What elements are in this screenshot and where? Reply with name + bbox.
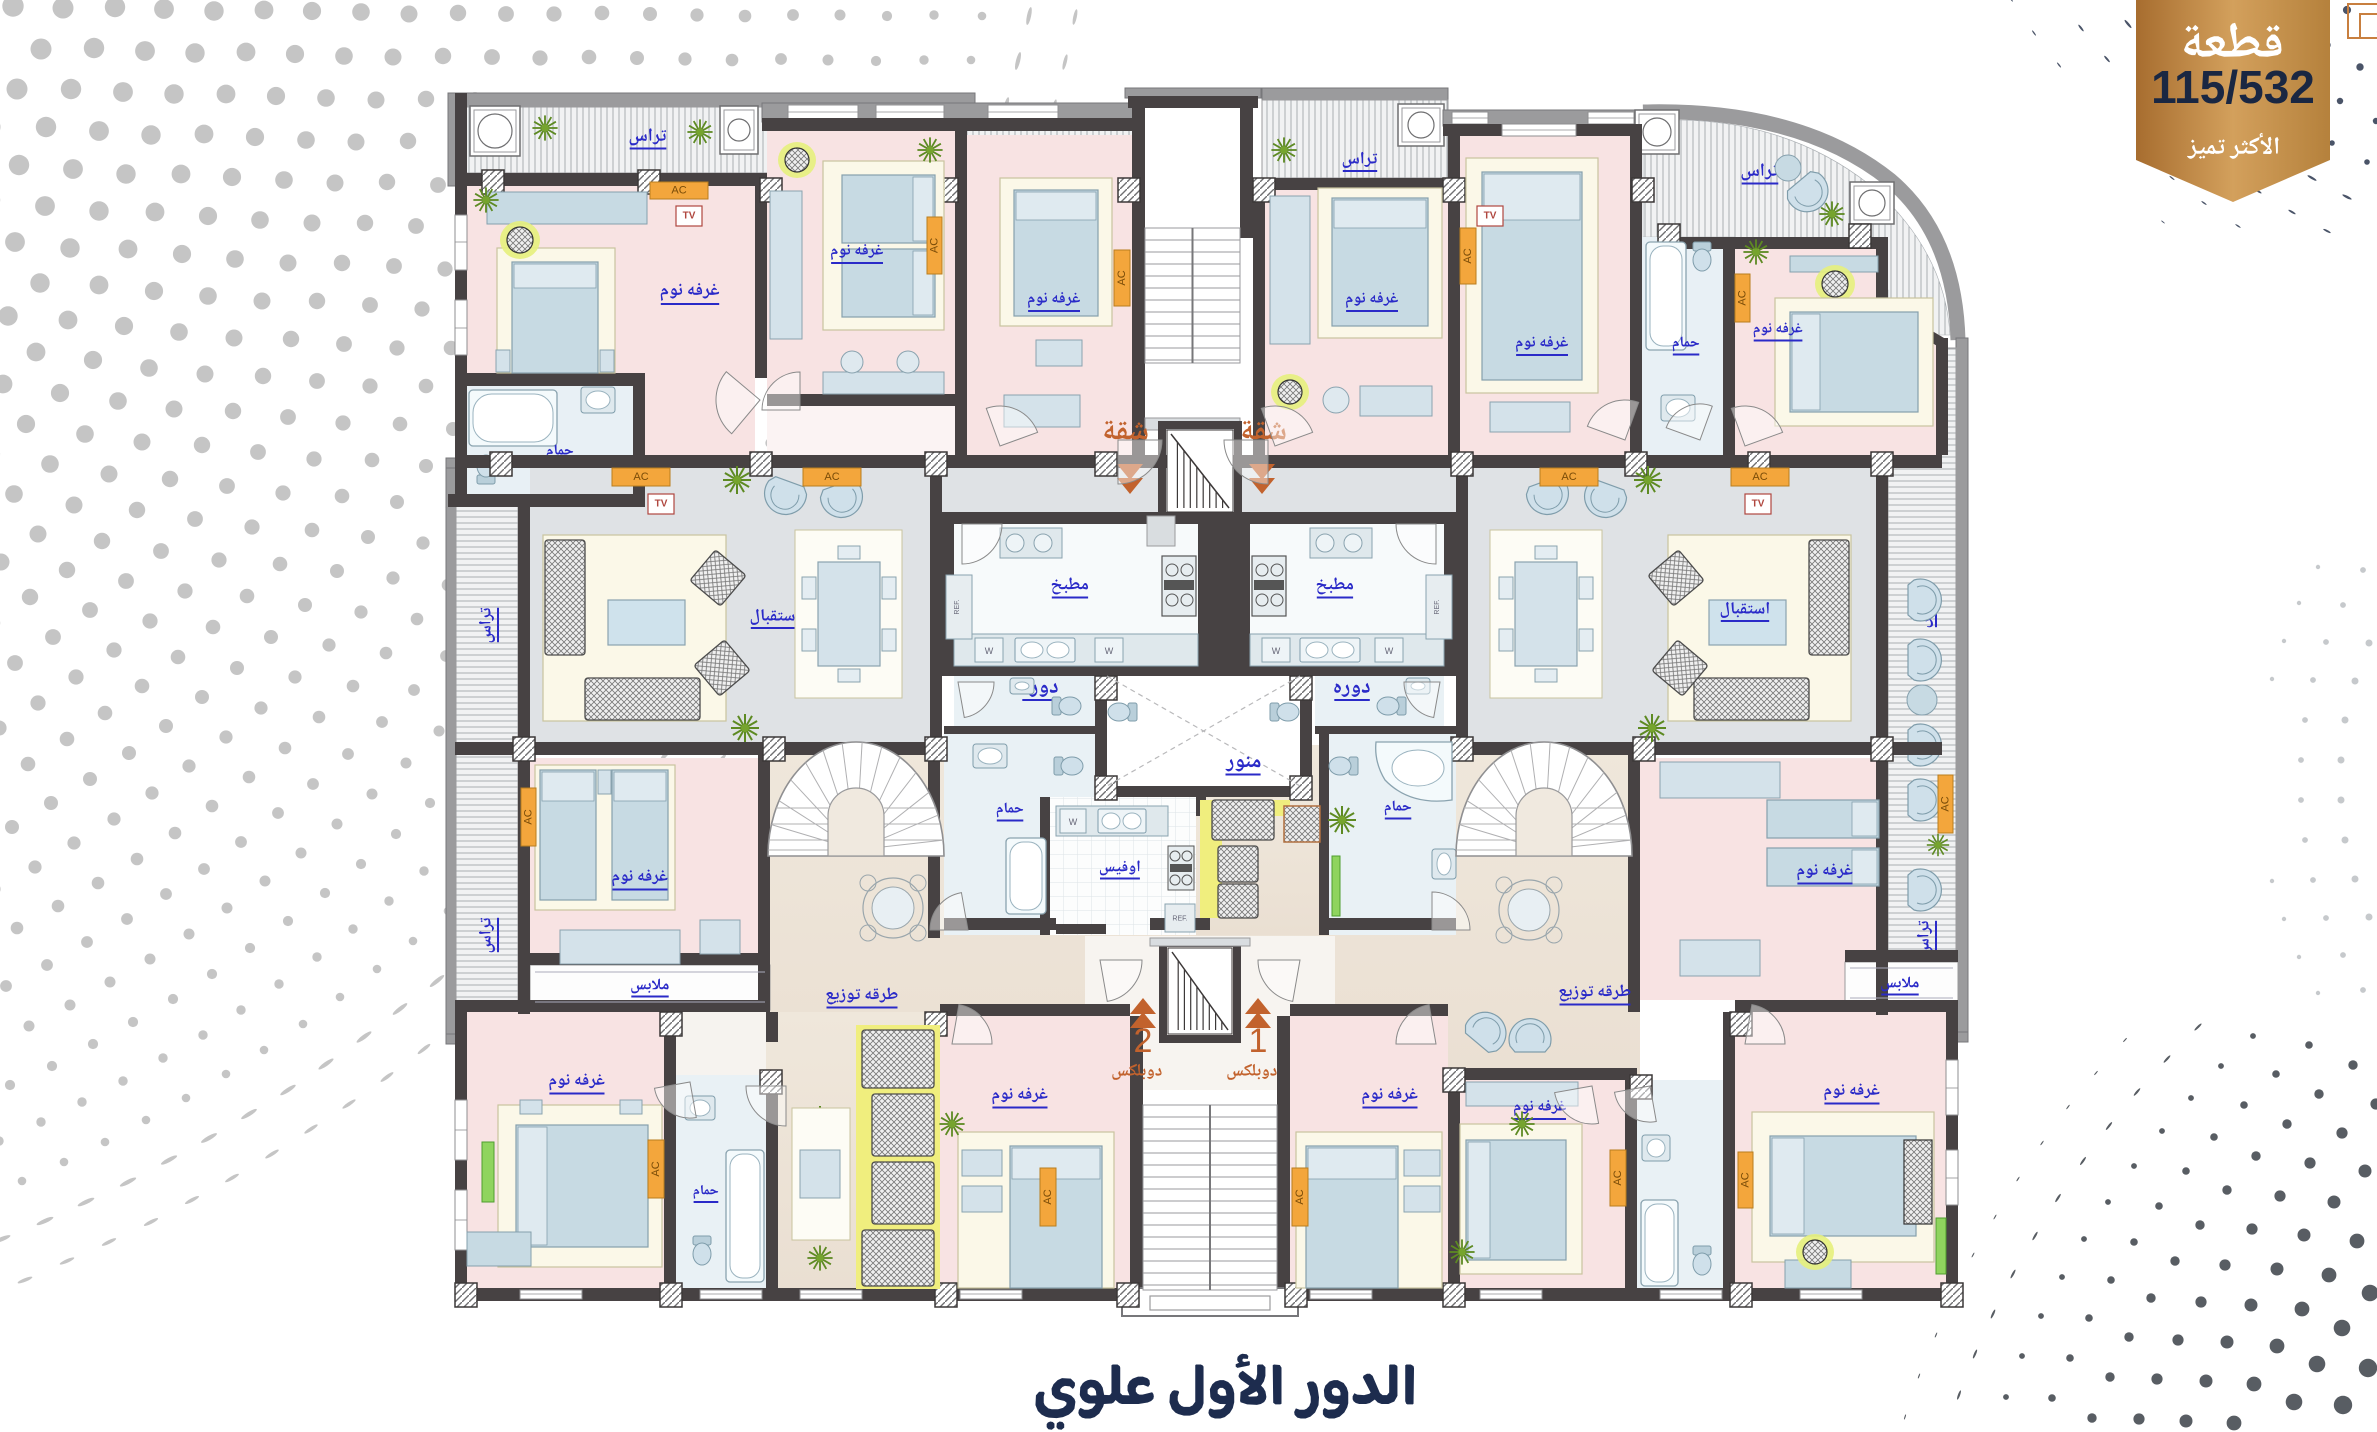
svg-text:TV: TV — [1484, 211, 1497, 222]
svg-text:REF.: REF. — [1434, 599, 1441, 614]
svg-text:AC: AC — [671, 185, 686, 197]
svg-text:TV: TV — [683, 211, 696, 222]
svg-text:REF.: REF. — [954, 599, 961, 614]
svg-text:AC: AC — [1737, 290, 1749, 305]
svg-text:AC: AC — [1042, 1189, 1054, 1204]
svg-text:AC: AC — [1462, 248, 1474, 263]
svg-text:TV: TV — [655, 499, 668, 510]
svg-text:AC: AC — [929, 238, 941, 253]
svg-text:AC: AC — [1561, 471, 1576, 483]
svg-text:REF.: REF. — [1172, 916, 1187, 923]
svg-text:AC: AC — [1294, 1189, 1306, 1204]
svg-text:115/532: 115/532 — [2151, 61, 2315, 113]
svg-text:AC: AC — [824, 471, 839, 483]
svg-text:AC: AC — [1612, 1170, 1624, 1185]
svg-text:AC: AC — [1752, 471, 1767, 483]
svg-text:1: 1 — [1249, 1022, 1268, 1060]
svg-text:AC: AC — [523, 809, 535, 824]
svg-text:W: W — [1105, 646, 1114, 656]
svg-text:TV: TV — [1752, 499, 1765, 510]
svg-text:W: W — [985, 646, 994, 656]
svg-text:W: W — [1385, 646, 1394, 656]
svg-text:AC: AC — [1740, 1172, 1752, 1187]
svg-text:AC: AC — [1940, 796, 1952, 811]
svg-text:AC: AC — [650, 1161, 662, 1176]
svg-text:AC: AC — [633, 471, 648, 483]
svg-text:AC: AC — [1116, 270, 1128, 285]
svg-text:W: W — [1069, 817, 1078, 827]
svg-text:2: 2 — [1134, 1022, 1153, 1060]
svg-text:W: W — [1272, 646, 1281, 656]
